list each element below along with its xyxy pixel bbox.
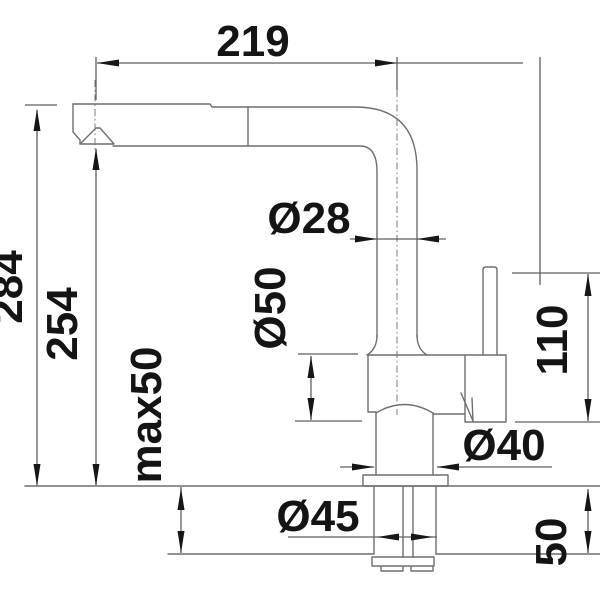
arrow-d50-down (308, 398, 315, 420)
arrow-d40-left (352, 464, 374, 471)
arrow-d40-right (437, 464, 459, 471)
label-spout-reach: 219 (216, 17, 289, 66)
label-spout-outlet-height: 254 (38, 287, 87, 361)
riser-collar-left (367, 335, 377, 355)
aerator-outline (80, 128, 114, 144)
arrow-110-down (585, 399, 592, 421)
label-shank-diameter: Ø45 (276, 492, 359, 541)
label-spout-pipe-diameter: Ø28 (267, 194, 350, 243)
label-max-counter-thickness: max50 (122, 346, 171, 483)
arrow-max50-down (178, 531, 185, 553)
dim-line-d50 (295, 354, 362, 421)
arrow-d28-left (355, 236, 377, 243)
lever-mount-detail (461, 393, 473, 421)
label-overall-height: 284 (0, 250, 32, 324)
arrow-50-up (585, 489, 592, 511)
label-under-counter-depth: 50 (527, 518, 576, 567)
arrow-50-down (585, 531, 592, 553)
ext-lines-219 (96, 57, 540, 285)
base-column-outline (376, 413, 433, 475)
arrow-284-up (34, 109, 41, 131)
arrow-d45-right (411, 534, 433, 541)
body-base-dome (376, 405, 433, 414)
label-body-height: 110 (528, 305, 577, 376)
label-body-diameter: Ø50 (246, 266, 295, 349)
arrow-max50-up (178, 488, 185, 510)
arrow-284-down (34, 464, 41, 486)
body-outline (368, 355, 506, 422)
shank-outline (374, 486, 436, 557)
spout-head-left-face (73, 104, 80, 144)
arrow-254-up (93, 148, 100, 170)
dimension-arrows (34, 60, 592, 554)
arrow-219-right (375, 60, 397, 67)
dimension-lines (25, 57, 600, 553)
spout-top-outline (73, 104, 417, 337)
arrow-d28-right (417, 236, 439, 243)
faucet-dimension-drawing: 219 284 254 max50 Ø28 Ø50 110 Ø40 Ø45 50 (0, 0, 600, 600)
riser-collar-right (417, 335, 427, 355)
arrow-110-up (585, 274, 592, 296)
fixing-nut-outline (372, 557, 434, 571)
arrow-d45-left (377, 534, 399, 541)
dimension-drawing-page: 219 284 254 max50 Ø28 Ø50 110 Ø40 Ø45 50 (0, 0, 600, 600)
arrow-254-down (93, 464, 100, 486)
label-base-diameter: Ø40 (462, 421, 545, 470)
base-flange-outline (363, 475, 448, 486)
arrow-d50-up (308, 356, 315, 378)
arrow-219-left (97, 60, 119, 67)
dimension-labels: 219 284 254 max50 Ø28 Ø50 110 Ø40 Ø45 50 (0, 17, 577, 566)
lever-handle-outline (483, 267, 497, 355)
